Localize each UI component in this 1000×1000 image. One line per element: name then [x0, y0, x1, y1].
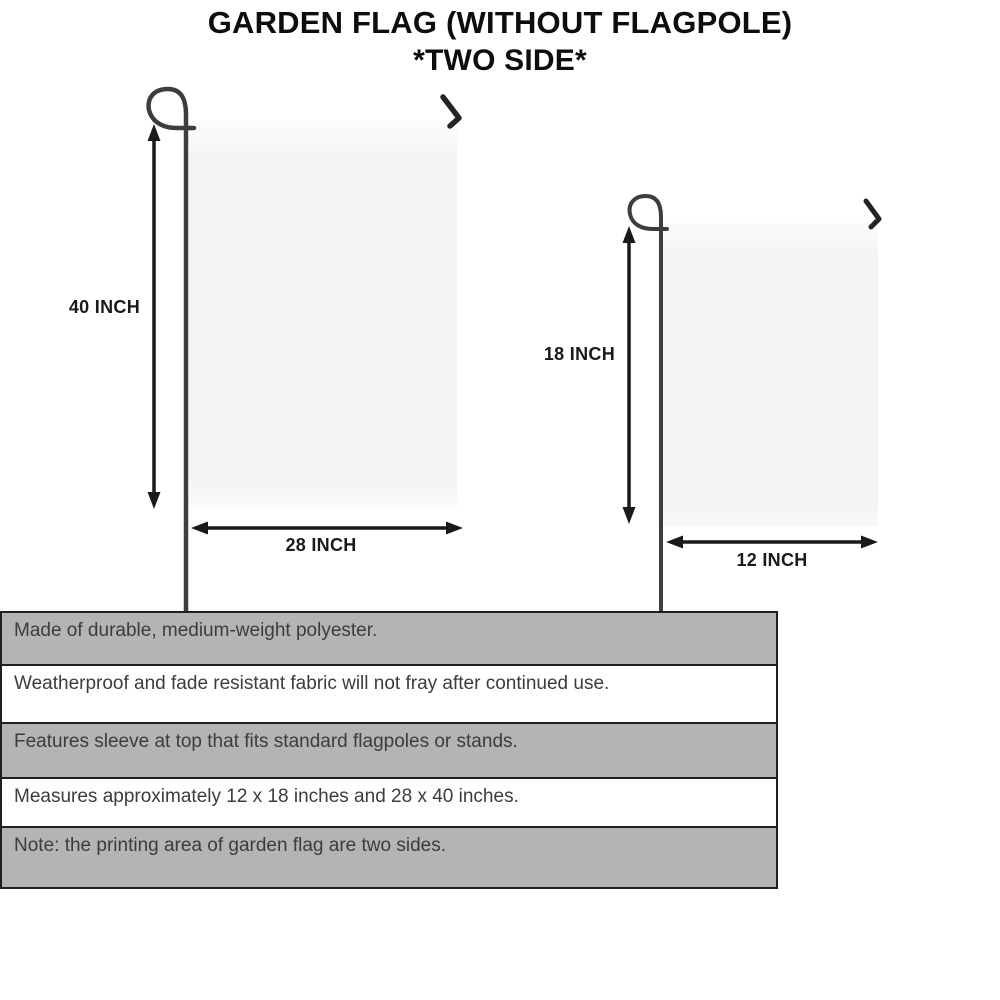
- spec-row-note: Note: the printing area of garden flag a…: [0, 826, 778, 889]
- large-width-arrow: [191, 522, 463, 535]
- small-flag-height-label: 18 INCH: [515, 344, 615, 365]
- spec-row-text: Made of durable, medium-weight polyester…: [14, 620, 377, 641]
- spec-table: Made of durable, medium-weight polyester…: [0, 611, 778, 889]
- spec-row-material: Made of durable, medium-weight polyester…: [0, 611, 778, 666]
- spec-row-text: Weatherproof and fade resistant fabric w…: [14, 673, 609, 694]
- spec-row-sleeve: Features sleeve at top that fits standar…: [0, 722, 778, 779]
- small-width-arrow: [666, 536, 878, 549]
- spec-row-text: Features sleeve at top that fits standar…: [14, 731, 518, 752]
- spec-row-text: Measures approximately 12 x 18 inches an…: [14, 786, 519, 807]
- large-height-arrow: [148, 124, 161, 509]
- small-flagpole-icon: [630, 196, 667, 611]
- small-height-arrow: [623, 226, 636, 524]
- spec-row-weatherproof: Weatherproof and fade resistant fabric w…: [0, 664, 778, 724]
- large-flag-width-label: 28 INCH: [241, 535, 401, 556]
- spec-row-text: Note: the printing area of garden flag a…: [14, 835, 446, 856]
- small-flag-hook-icon: [866, 201, 879, 227]
- garden-flag-infographic: GARDEN FLAG (WITHOUT FLAGPOLE) *TWO SIDE…: [0, 0, 1000, 1000]
- spec-row-measures: Measures approximately 12 x 18 inches an…: [0, 777, 778, 828]
- large-flag-height-label: 40 INCH: [40, 297, 140, 318]
- small-flag-width-label: 12 INCH: [692, 550, 852, 571]
- large-flag-hook-icon: [443, 97, 459, 126]
